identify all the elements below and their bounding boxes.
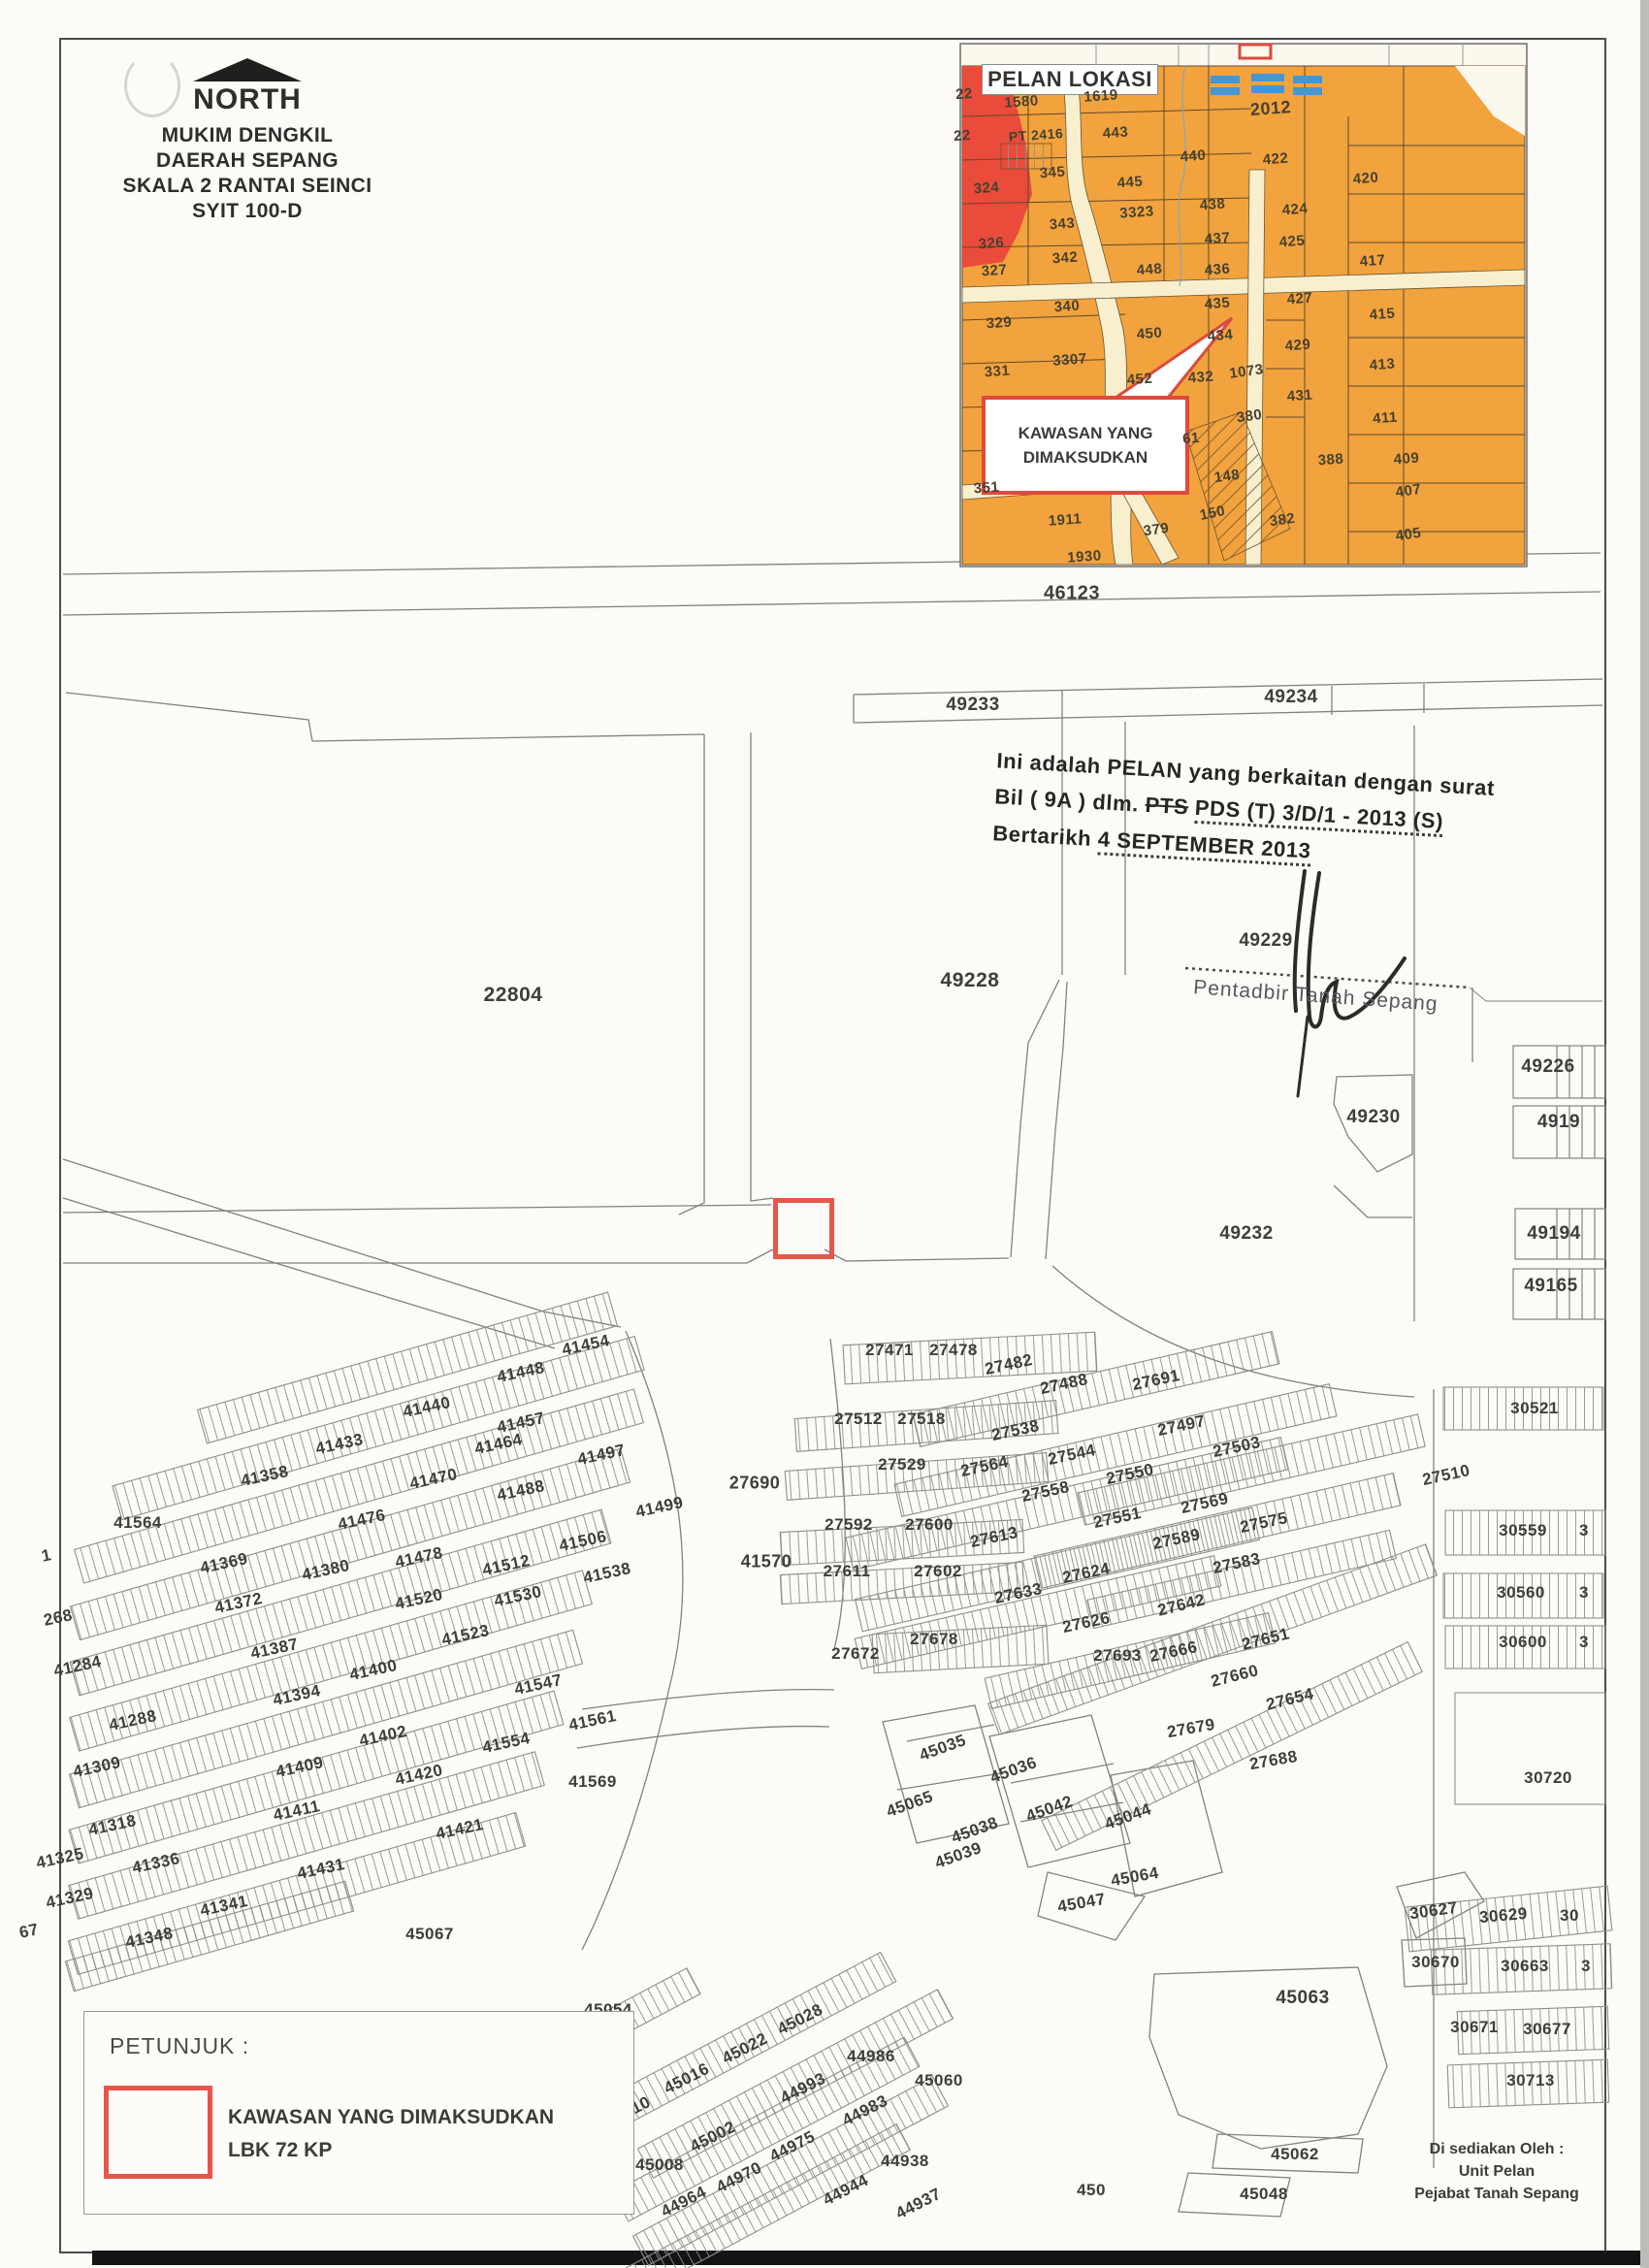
inset-lot-label: 61 <box>1182 430 1201 447</box>
plan-title-syit: SYIT 100-D <box>92 200 403 223</box>
map-lot-label: 30600 <box>1499 1633 1547 1652</box>
map-lot-label: 27690 <box>729 1474 781 1494</box>
struck-text: PTS <box>1145 793 1189 819</box>
inset-lot-label: 1580 <box>1004 92 1039 111</box>
inset-lot-label: 343 <box>1049 215 1076 234</box>
map-lot-label: 49233 <box>946 695 999 716</box>
map-lot-label: 3 <box>1579 1633 1589 1652</box>
inset-lot-label: 432 <box>1187 369 1214 387</box>
scan-edge-shadow <box>1640 0 1649 2268</box>
legend-item-label: KAWASAN YANG DIMAKSUDKAN LBK 72 KP <box>228 2101 554 2166</box>
inset-lot-label: 1619 <box>1083 86 1118 105</box>
map-lot-label: 27693 <box>1093 1646 1142 1666</box>
inset-lot-label: 417 <box>1359 252 1386 271</box>
map-lot-label: 45008 <box>635 2155 684 2175</box>
inset-lot-label: 437 <box>1204 230 1231 248</box>
kawasan-callout: KAWASAN YANG DIMAKSUDKAN <box>982 396 1189 495</box>
scan-bottom-bar <box>92 2251 1649 2265</box>
legend-box: PETUNJUK : KAWASAN YANG DIMAKSUDKAN LBK … <box>83 2011 634 2215</box>
inset-lot-label: 380 <box>1236 406 1264 427</box>
inset-lot-label: 382 <box>1269 510 1297 531</box>
inset-lot-label: 148 <box>1213 467 1242 487</box>
map-lot-label: 49228 <box>941 969 1000 992</box>
inset-lot-label: 331 <box>984 363 1011 381</box>
inset-lot-label: 345 <box>1039 164 1066 182</box>
credit-line2: Unit Pelan <box>1366 2160 1628 2183</box>
inset-lot-label: 3323 <box>1119 203 1154 221</box>
inset-lot-label: 431 <box>1286 387 1313 405</box>
inset-lot-label: 440 <box>1180 147 1207 166</box>
map-lot-label: 3 <box>1579 1583 1589 1603</box>
map-lot-label: 45048 <box>1240 2185 1288 2204</box>
map-lot-label: 30559 <box>1499 1521 1547 1540</box>
map-lot-label: 45067 <box>405 1925 454 1944</box>
inset-lot-label: 326 <box>978 235 1005 253</box>
credit-line3: Pejabat Tanah Sepang <box>1366 2183 1628 2205</box>
map-lot-label: 4919 <box>1537 1112 1580 1133</box>
inset-lot-label: 379 <box>1143 520 1171 540</box>
callout-line2: DIMAKSUDKAN <box>1023 445 1148 470</box>
map-lot-label: 30670 <box>1411 1953 1460 1972</box>
inset-lot-label: 425 <box>1278 233 1306 251</box>
map-lot-label: 450 <box>1077 2181 1106 2200</box>
map-lot-label: 49230 <box>1346 1107 1400 1128</box>
map-lot-label: 30521 <box>1510 1399 1559 1418</box>
inset-lot-label: 429 <box>1284 337 1311 355</box>
map-lot-label: 41564 <box>113 1513 162 1533</box>
inset-lot-label: 448 <box>1136 261 1163 279</box>
map-lot-label: 27611 <box>824 1562 871 1581</box>
scanned-survey-plan: NORTH MUKIM DENGKIL DAERAH SEPANG SKALA … <box>0 0 1649 2268</box>
map-lot-label: 41569 <box>568 1772 617 1792</box>
map-lot-label: 27672 <box>831 1644 880 1664</box>
inset-lot-label: 329 <box>986 314 1013 333</box>
map-lot-label: 27678 <box>910 1630 958 1649</box>
map-lot-label: 46123 <box>1044 583 1100 605</box>
north-arrow-icon <box>193 58 302 81</box>
map-lot-label: 45060 <box>915 2071 963 2090</box>
inset-lot-label: 324 <box>973 179 1000 198</box>
inset-lot-label: 452 <box>1126 371 1153 389</box>
map-lot-label: 49234 <box>1264 687 1317 708</box>
map-lot-label: 3 <box>1579 1521 1589 1540</box>
map-lot-label: 22804 <box>484 984 543 1007</box>
map-lot-label: 44938 <box>881 2152 929 2171</box>
map-lot-label: 67 <box>17 1920 41 1943</box>
map-lot-label: 27518 <box>897 1409 946 1429</box>
map-lot-label: 27602 <box>914 1562 962 1581</box>
inset-lot-label: 327 <box>981 262 1008 280</box>
inset-lot-label: 450 <box>1136 325 1163 343</box>
inset-lot-label: 3307 <box>1052 350 1087 369</box>
map-lot-label: 49229 <box>1239 930 1292 952</box>
inset-lot-label: 409 <box>1393 450 1420 469</box>
map-lot-label: 30 <box>1560 1906 1579 1926</box>
inset-lot-label: 424 <box>1281 201 1309 219</box>
inset-lot-label: 435 <box>1204 295 1231 313</box>
inset-lot-label: 422 <box>1262 150 1289 169</box>
map-lot-label: 27512 <box>834 1409 883 1429</box>
credit-line1: Di sediakan Oleh : <box>1366 2138 1628 2160</box>
inset-lot-label: 342 <box>1051 249 1079 268</box>
inset-lot-label: 420 <box>1352 170 1379 188</box>
inset-lot-label: 415 <box>1369 306 1396 324</box>
map-lot-label: 45063 <box>1276 1988 1329 2009</box>
map-lot-label: 27592 <box>824 1515 873 1535</box>
map-lot-label: 30677 <box>1523 2020 1571 2039</box>
inset-lot-label: 340 <box>1053 298 1081 316</box>
map-lot-label: 30663 <box>1501 1957 1549 1976</box>
map-lot-label: 3 <box>1581 1957 1591 1976</box>
map-lot-label: 45062 <box>1271 2145 1319 2164</box>
map-lot-label: 30713 <box>1506 2071 1555 2090</box>
map-lot-label: 49226 <box>1521 1056 1574 1078</box>
map-lot-label: 30671 <box>1450 2018 1499 2037</box>
inset-lot-label: 1930 <box>1067 547 1102 566</box>
inset-lot-label: 413 <box>1369 356 1396 374</box>
legend-red-swatch <box>104 2086 212 2179</box>
plan-title-mukim: MUKIM DENGKIL <box>92 124 403 147</box>
inset-lot-label: 2012 <box>1249 97 1291 120</box>
plan-geometry <box>0 0 1649 2268</box>
inset-lot-label: 445 <box>1116 174 1144 192</box>
inset-lot-label: 351 <box>973 479 1000 498</box>
legend-heading: PETUNJUK : <box>110 2033 249 2059</box>
map-lot-label: 44986 <box>847 2047 895 2066</box>
north-label: NORTH <box>92 83 403 116</box>
inset-lot-label: 388 <box>1317 451 1344 470</box>
map-lot-label: 27471 <box>865 1341 914 1360</box>
inset-lot-label: 427 <box>1286 290 1313 308</box>
plan-title-skala: SKALA 2 RANTAI SEINCI <box>92 175 403 198</box>
plan-title-daerah: DAERAH SEPANG <box>92 149 403 173</box>
inset-lot-label: 436 <box>1204 261 1231 279</box>
inset-lot-label: 443 <box>1102 124 1129 143</box>
map-lot-label: 49165 <box>1524 1276 1577 1297</box>
inset-lot-label: 22 <box>955 85 974 103</box>
inset-lot-label: 438 <box>1199 196 1226 214</box>
prepared-by-block: Di sediakan Oleh : Unit Pelan Pejabat Ta… <box>1366 2138 1628 2206</box>
inset-lot-label: 405 <box>1395 525 1423 545</box>
inset-lot-label: 434 <box>1207 327 1234 345</box>
map-lot-label: 27478 <box>929 1341 978 1360</box>
map-lot-label: 49194 <box>1527 1223 1580 1245</box>
map-lot-label: 30560 <box>1497 1583 1545 1603</box>
callout-line1: KAWASAN YANG <box>1018 421 1153 446</box>
inset-lot-label: 22 <box>954 127 972 145</box>
inset-lot-label: 407 <box>1395 481 1423 502</box>
subject-area-marker <box>773 1198 834 1259</box>
inset-lot-label: 1911 <box>1048 510 1083 529</box>
inset-title: PELAN LOKASI <box>982 64 1158 95</box>
map-lot-label: 27529 <box>878 1455 926 1474</box>
map-lot-label: 30720 <box>1524 1768 1572 1788</box>
map-lot-label: 27600 <box>905 1515 954 1535</box>
map-lot-label: 41570 <box>741 1552 792 1572</box>
plan-header: NORTH MUKIM DENGKIL DAERAH SEPANG SKALA … <box>92 58 403 223</box>
map-lot-label: 49232 <box>1219 1223 1273 1245</box>
inset-lot-label: 411 <box>1373 409 1399 428</box>
